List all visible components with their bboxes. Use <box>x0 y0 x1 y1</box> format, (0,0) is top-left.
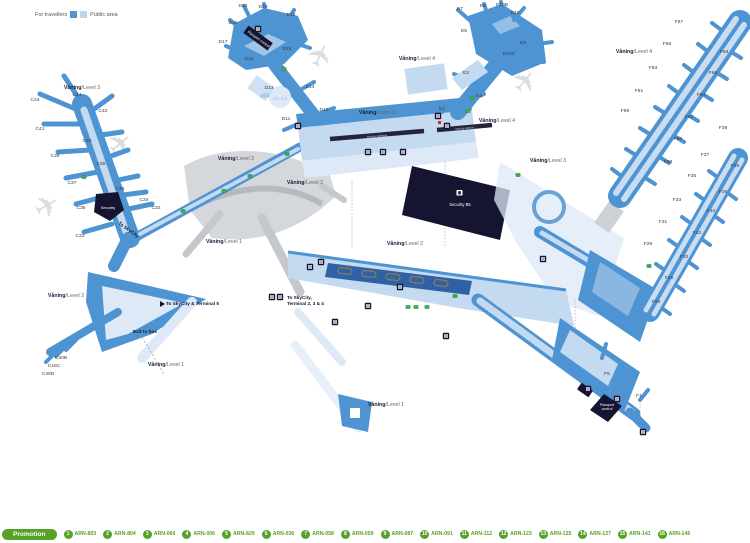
gate-label-D19: D19 <box>229 20 238 26</box>
gate-label-E7: E7 <box>457 6 463 12</box>
gate-label-C32: C32 <box>152 205 161 211</box>
gate-label-D15: D15 <box>245 56 254 62</box>
promotion-marker[interactable] <box>248 174 252 177</box>
gate-finger <box>669 86 677 92</box>
level-label: Våning/Level 3 <box>530 157 566 164</box>
promotion-item-ARN-125[interactable]: 13ARN-125 <box>539 530 572 539</box>
gate-label-F67: F67 <box>675 19 684 25</box>
gate-label-C33: C33 <box>76 233 85 239</box>
gate-label-F59: F59 <box>621 108 630 114</box>
promotion-number: 9 <box>381 530 390 539</box>
corridor <box>630 412 646 428</box>
airplane-icon: ✈ <box>28 186 66 227</box>
gate-label-F32: F32 <box>693 230 702 236</box>
promotion-marker[interactable] <box>285 152 289 155</box>
gate-label-D20: D20 <box>259 4 268 10</box>
promotion-item-ARN-803[interactable]: 1ARN-803 <box>64 530 97 539</box>
gate-finger <box>684 65 692 71</box>
gate-label-C18C: C18C <box>48 363 61 369</box>
promotion-marker[interactable] <box>406 305 410 308</box>
promotion-code: ARN-125 <box>550 531 572 537</box>
elevator-icon <box>332 319 338 325</box>
promotion-marker[interactable] <box>282 67 286 70</box>
gate-finger <box>712 23 720 29</box>
gate-label-C30B: C30B <box>55 355 67 361</box>
promotion-number: 14 <box>578 530 587 539</box>
elevator-icon <box>277 294 283 300</box>
gate-finger <box>709 171 716 176</box>
security-c-label: Security <box>101 205 115 210</box>
promotion-marker[interactable] <box>453 294 457 297</box>
promotion-code: ARN-058 <box>312 531 334 537</box>
promotion-code: ARN-804 <box>114 531 136 537</box>
gate-label-F30: F30 <box>680 254 689 260</box>
gate-label-C30D: C30D <box>42 371 55 377</box>
gate-label-F34: F34 <box>707 208 716 214</box>
promotion-marker[interactable] <box>470 96 474 99</box>
promotion-number: 1 <box>64 530 73 539</box>
promotion-code: ARN-036 <box>273 531 295 537</box>
promotion-item-ARN-804[interactable]: 2ARN-804 <box>103 530 136 539</box>
level-label: Våning/Level 4 <box>616 48 652 55</box>
elevator-icon <box>365 303 371 309</box>
promotion-button[interactable]: Promotion <box>2 529 57 540</box>
promotion-code: ARN-059 <box>352 531 374 537</box>
promotion-code: ARN-006 <box>193 531 215 537</box>
elevator-icon <box>640 429 646 435</box>
gate-label-C44: C44 <box>73 92 82 98</box>
promotion-items: 1ARN-8032ARN-8043ARN-0654ARN-0065ARN-829… <box>57 530 691 539</box>
promotion-number: 10 <box>420 530 429 539</box>
level-label: Våning/Level 2 <box>48 292 84 299</box>
gate-finger <box>696 194 703 199</box>
gate-finger <box>612 169 620 175</box>
level-label: Våning/Level 2 <box>287 179 323 186</box>
gate-finger <box>656 264 663 269</box>
gate-label-F61: F61 <box>635 88 644 94</box>
south-central-building <box>295 312 372 432</box>
gate-finger <box>690 263 697 268</box>
elevator-icon <box>540 256 546 262</box>
promotion-number: 3 <box>143 530 152 539</box>
promotion-item-ARN-141[interactable]: 15ARN-141 <box>618 530 651 539</box>
elevator-icon <box>400 149 406 155</box>
promotion-item-ARN-036[interactable]: 6ARN-036 <box>262 530 295 539</box>
level-label: Våning/Level 3 <box>359 109 395 116</box>
gate-finger <box>682 217 689 222</box>
gate-label-C34: C34 <box>140 197 149 203</box>
promotion-marker[interactable] <box>425 305 429 308</box>
gate-finger <box>663 309 670 314</box>
pier-corridor <box>654 160 742 314</box>
promotion-item-ARN-127[interactable]: 14ARN-127 <box>578 530 611 539</box>
security-b5-label: Security B5 <box>449 202 471 207</box>
elevator-icon <box>443 333 449 339</box>
security-icon-glyph <box>458 191 461 194</box>
building-notch <box>350 408 360 418</box>
gate-finger <box>669 240 676 245</box>
elevator-icon <box>307 264 313 270</box>
promotion-number: 12 <box>499 530 508 539</box>
promotion-code: ARN-829 <box>233 531 255 537</box>
gate-label-C43: C43 <box>31 97 40 103</box>
gate-label-F63: F63 <box>649 65 658 71</box>
elevator-icon <box>318 259 324 265</box>
southwest-terminal <box>46 272 206 374</box>
promotion-marker[interactable] <box>222 189 226 192</box>
level-label: Våning/Level 4 <box>479 117 515 124</box>
promotion-number: 7 <box>301 530 310 539</box>
promotion-code: ARN-127 <box>589 531 611 537</box>
gate-label-F31: F31 <box>659 219 668 225</box>
promotion-code: ARN-141 <box>629 531 651 537</box>
gate-finger <box>626 149 634 154</box>
map-annotation: Exit to bus <box>133 329 157 334</box>
gate-label-C35: C35 <box>77 205 86 211</box>
promotion-code: ARN-087 <box>392 531 414 537</box>
promotion-item-ARN-058[interactable]: 7ARN-058 <box>301 530 334 539</box>
promotion-marker[interactable] <box>82 175 86 178</box>
gate-label-D18: D18 <box>287 12 296 18</box>
promotion-item-ARN-829[interactable]: 5ARN-829 <box>222 530 255 539</box>
gate-label-D16: D16 <box>283 46 292 52</box>
promotion-code: ARN-803 <box>75 531 97 537</box>
gate-label-C40: C40 <box>83 138 92 144</box>
elevator-icon <box>397 284 403 290</box>
pier-corridor <box>616 19 736 193</box>
gate-label-C41: C41 <box>36 126 45 132</box>
promotion-marker[interactable] <box>516 173 520 176</box>
gate-label-F62: F62 <box>685 114 694 120</box>
legend-travellers-label: For travellers <box>35 12 67 18</box>
gate-label-F39: F39 <box>719 125 728 131</box>
gate-label-E9: E9 <box>480 3 486 9</box>
gate-label-E5: E5 <box>461 28 467 34</box>
promotion-code: ARN-091 <box>431 531 453 537</box>
gate-label-F58: F58 <box>664 159 673 165</box>
elevator-icon <box>269 294 275 300</box>
level-label: Våning/Level 3 <box>64 84 100 91</box>
promotion-number: 13 <box>539 530 548 539</box>
gate-label-F66: F66 <box>709 70 718 76</box>
promotion-marker[interactable] <box>414 305 418 308</box>
gate-finger <box>530 60 544 62</box>
level-label: Våning/Level 4 <box>399 55 435 62</box>
promotion-number: 2 <box>103 530 112 539</box>
gate-label-D24: D24 <box>239 3 248 9</box>
gate-label-E4: E4 <box>476 93 482 99</box>
level-label: Våning/Level 1 <box>368 401 404 408</box>
pier-junction <box>114 238 128 266</box>
promotion-number: 15 <box>618 530 627 539</box>
promotion-item-ARN-059[interactable]: 8ARN-059 <box>341 530 374 539</box>
gate-finger <box>733 53 741 58</box>
promotion-number: 5 <box>222 530 231 539</box>
elevator-icon <box>435 113 441 119</box>
gate-finger <box>58 150 90 152</box>
sky-bar-label: Sky Bar <box>273 96 288 101</box>
gate-finger <box>538 42 552 44</box>
elevator-icon <box>255 26 261 32</box>
elevator-icon <box>365 149 371 155</box>
gate-label-F37: F37 <box>701 152 710 158</box>
gate-label-E3: E3 <box>463 70 469 76</box>
gate-label-E8: E8 <box>520 40 526 46</box>
level-label: Våning/Level 2 <box>218 155 254 162</box>
elevator-icon <box>295 123 301 129</box>
promotion-item-ARN-146[interactable]: 16ARN-146 <box>658 530 691 539</box>
gate-label-D13: D13 <box>265 85 274 91</box>
promotion-item-ARN-112[interactable]: 11ARN-112 <box>460 530 492 539</box>
pier-corridor <box>646 156 734 310</box>
gate-label-E1: E1 <box>439 106 445 112</box>
elevator-icon <box>380 149 386 155</box>
elevator-icon <box>585 386 591 392</box>
promotion-marker[interactable] <box>181 209 185 212</box>
gate-label-D11: D11 <box>282 116 291 122</box>
promotion-code: ARN-112 <box>471 531 492 537</box>
gate-label-F26: F26 <box>652 299 661 305</box>
gate-label-F60: F60 <box>674 136 683 142</box>
gate-label-F65: F65 <box>663 41 672 47</box>
gate-label-F35: F35 <box>688 173 697 179</box>
promotion-bar: Promotion 1ARN-8032ARN-8043ARN-0654ARN-0… <box>0 526 750 542</box>
airport-map[interactable]: ✈✈✈✈ <box>0 0 750 522</box>
elevator-icon <box>444 123 450 129</box>
gate-finger <box>84 224 112 232</box>
gate-finger <box>655 107 663 112</box>
gate-label-F68: F68 <box>720 49 729 55</box>
gate-label-C36: C36 <box>116 186 125 192</box>
promotion-code: ARN-065 <box>154 531 176 537</box>
gate-finger <box>647 179 655 184</box>
level4-hall <box>404 63 447 94</box>
level-label: Våning/Level 1 <box>206 238 242 245</box>
gate-label-C38: C38 <box>97 161 106 167</box>
level-label: Våning/Level 2 <box>387 240 423 247</box>
gate-label-F36: F36 <box>719 189 728 195</box>
promotion-item-ARN-091[interactable]: 10ARN-091 <box>420 530 453 539</box>
level-label: Våning/Level 1 <box>148 361 184 368</box>
promotion-item-ARN-006[interactable]: 4ARN-006 <box>182 530 215 539</box>
map-annotation: To SkyCity, <box>287 295 312 300</box>
promotion-number: 4 <box>182 530 191 539</box>
map-legend: For travellers Public area <box>35 11 118 18</box>
gate-label-F1: F1 <box>636 393 642 399</box>
legend-public-swatch <box>80 11 87 18</box>
promotion-number: 8 <box>341 530 350 539</box>
gate-label-F28: F28 <box>665 275 674 281</box>
map-annotation: To SkyCity & Terminal 5 <box>166 301 219 306</box>
promotion-code: ARN-146 <box>669 531 691 537</box>
legend-travellers-swatch <box>70 11 77 18</box>
gate-label-E10: E10 <box>511 10 520 16</box>
promotion-item-ARN-087[interactable]: 9ARN-087 <box>381 530 414 539</box>
gate-label-D17: D17 <box>219 39 228 45</box>
map-annotation: Terminal 2, 3 & 4 <box>287 301 324 306</box>
promotion-number: 6 <box>262 530 271 539</box>
gate-label-D14: D14 <box>306 84 315 90</box>
gate-label-F38: F38 <box>731 163 740 169</box>
promotion-marker[interactable] <box>647 264 651 267</box>
gate-label-D12: D12 <box>320 107 329 113</box>
gate-label-F29: F29 <box>644 241 653 247</box>
gate-label-C37: C37 <box>68 180 77 186</box>
gate-finger <box>729 194 736 199</box>
legend-public-label: Public area <box>90 12 118 18</box>
gate-label-F5: F5 <box>604 371 610 377</box>
gate-finger <box>640 128 648 133</box>
passport-f-label: Passportcontrol <box>600 403 614 411</box>
gate-finger <box>716 217 723 222</box>
gate-label-C42: C42 <box>99 108 108 114</box>
promotion-item-ARN-123[interactable]: 12ARN-123 <box>499 530 532 539</box>
gate-finger <box>719 74 727 79</box>
gate-label-C39: C39 <box>51 153 60 159</box>
alert-dot <box>438 121 441 124</box>
promotion-number: 16 <box>658 530 667 539</box>
promotion-marker[interactable] <box>466 109 470 112</box>
gate-label-E10C: E10C <box>503 51 516 57</box>
elevator-icon <box>614 396 620 402</box>
gate-finger <box>698 44 706 50</box>
gate-label-F33: F33 <box>673 197 682 203</box>
promotion-code: ARN-123 <box>510 531 532 537</box>
gate-label-F64: F64 <box>697 92 706 98</box>
gate-label-E10B: E10B <box>496 2 508 8</box>
promotion-item-ARN-065[interactable]: 3ARN-065 <box>143 530 176 539</box>
gate-finger <box>677 286 684 291</box>
gate-finger <box>703 240 710 245</box>
promotion-number: 11 <box>460 530 469 539</box>
airplane-icon: ✈ <box>301 38 342 75</box>
